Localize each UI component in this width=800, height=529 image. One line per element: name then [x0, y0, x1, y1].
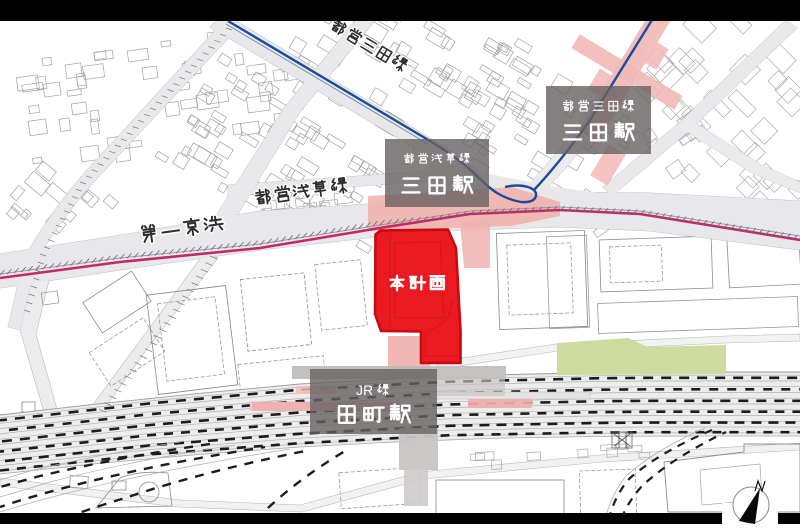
svg-text:JR: JR — [356, 382, 373, 398]
